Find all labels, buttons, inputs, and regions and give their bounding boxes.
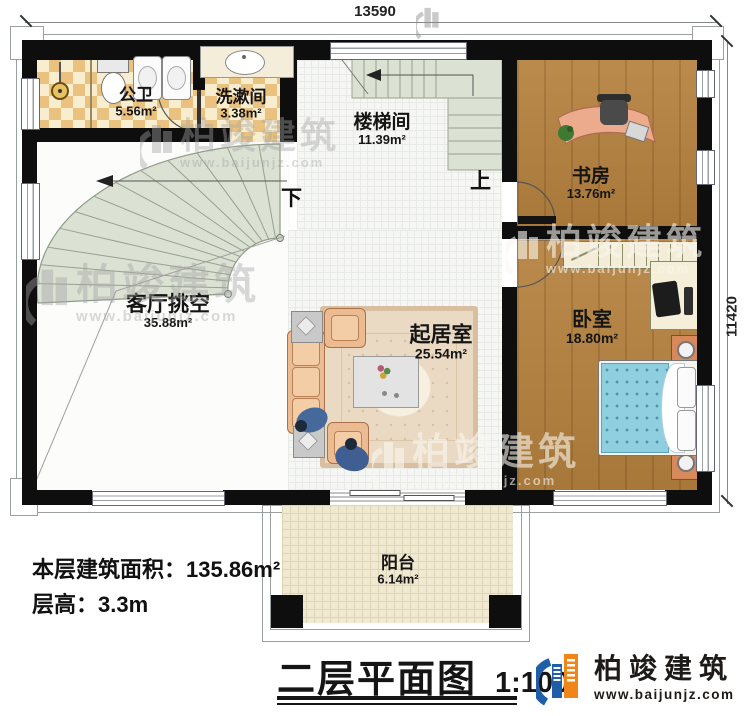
wall-study-bedroom [502, 226, 697, 239]
floor-plan-sheet: 公卫 5.56m² 洗漱间 3.38m² 楼梯间 11.39m² 书房 13.7… [0, 0, 750, 716]
room-label-balcony: 阳台 6.14m² [377, 554, 418, 585]
side-table-top [291, 311, 323, 343]
floor-height-text: 层高：3.3m [32, 587, 148, 619]
pillow-2 [677, 410, 696, 451]
floor-area-text: 本层建筑面积：135.86m² [32, 552, 280, 584]
tv [652, 280, 681, 317]
study-floor [517, 60, 697, 228]
title-underline-thin [277, 703, 517, 705]
stair-direction-up: 上 [470, 165, 491, 195]
bed [598, 360, 699, 456]
wall-study-west [502, 40, 517, 182]
window-top-stairwell [330, 42, 467, 60]
brand-logo-icon [536, 650, 586, 706]
sofa [287, 330, 325, 434]
title-underline-thick [277, 696, 517, 700]
dimension-line-right [727, 42, 728, 504]
brand-name: 柏竣建筑 [594, 655, 735, 683]
window-bottom-bedroom [553, 491, 667, 506]
balcony-column-left [271, 595, 303, 628]
shower-partition-line [90, 60, 92, 130]
window-bedroom [696, 385, 715, 472]
wall-bath-south [22, 128, 230, 142]
room-label-public-bath: 公卫 5.56m² [115, 86, 156, 117]
wall-bottom-seg2 [223, 490, 330, 505]
wall-bottom-seg4 [665, 490, 712, 505]
room-label-living-void: 客厅挑空 35.88m² [126, 294, 210, 330]
drawing-title-text: 二层平面图 [277, 648, 477, 703]
room-label-bedroom: 卧室 18.80m² [566, 310, 618, 346]
basin-unit-2 [162, 56, 191, 100]
dimension-line-top [25, 22, 718, 23]
room-label-family-room: 起居室 25.54m² [410, 325, 473, 362]
pillow-1 [677, 367, 696, 408]
remote-control [684, 287, 693, 315]
armchair-top [324, 308, 366, 348]
window-bottom-void [92, 491, 225, 506]
wall-bedroom-west-lower [502, 287, 517, 505]
window-study-2 [696, 150, 715, 185]
room-label-washroom: 洗漱间 3.38m² [216, 88, 267, 119]
brand-url: www.baijunjz.com [594, 687, 735, 702]
toilet-tank [97, 58, 129, 73]
room-label-study: 书房 13.76m² [567, 167, 615, 201]
drawing-title: 二层平面图 1:100 [277, 648, 569, 703]
balcony-column-right [489, 595, 521, 628]
coffee-table [353, 356, 419, 408]
room-label-stairwell: 楼梯间 11.39m² [353, 113, 410, 147]
window-left-bath [21, 78, 40, 130]
washroom-sink [225, 50, 265, 75]
wall-bottom-seg1 [22, 490, 92, 505]
stair-direction-down: 下 [281, 182, 302, 212]
bed-duvet [601, 363, 669, 453]
dimension-depth: 11420 [724, 287, 741, 347]
window-study-1 [696, 70, 715, 98]
side-table-bottom [293, 426, 325, 458]
dimension-width: 13590 [330, 3, 420, 20]
brand-logo: 柏竣建筑 www.baijunjz.com [536, 650, 735, 706]
armchair-bottom [327, 422, 369, 464]
window-left-stair [21, 183, 40, 260]
